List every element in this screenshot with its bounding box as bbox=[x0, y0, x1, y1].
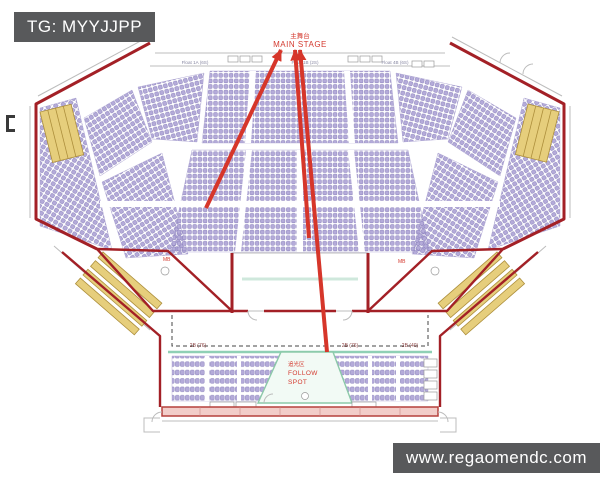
follow-spot-label-2: SPOT bbox=[288, 379, 307, 386]
corridor-line bbox=[452, 37, 562, 96]
ramp-bank-left bbox=[75, 252, 161, 335]
watermark-text: www.regaomendc.com bbox=[406, 448, 587, 468]
corridor-line bbox=[54, 246, 546, 330]
lower-level: 2B (76) 2B (76) 2B (40) 追光区 FOLLOW SPOT bbox=[144, 315, 456, 432]
stage: 主舞台 MAIN STAGE Float 1A (6S) Float 1B (2… bbox=[182, 31, 434, 67]
column bbox=[161, 267, 169, 275]
end-structure bbox=[144, 418, 456, 432]
follow-spot-label-cn: 追光区 bbox=[288, 360, 305, 368]
ramp-label-right: MB bbox=[398, 259, 406, 265]
watermark-badge: www.regaomendc.com bbox=[393, 443, 600, 473]
tag-badge-text: TG: MYYJJPP bbox=[27, 17, 142, 37]
column bbox=[431, 267, 439, 275]
ramp-label-left: MB bbox=[163, 257, 171, 263]
door-arc bbox=[248, 311, 352, 320]
row-label-right: 2B (40) bbox=[402, 343, 419, 349]
tag-badge: TG: MYYJJPP bbox=[14, 12, 155, 42]
pit-floor bbox=[232, 253, 368, 311]
float-label-left: Float 1A (6S) bbox=[182, 60, 209, 65]
dashed-boundary bbox=[172, 315, 428, 346]
screenshot-canvas: MB MB 主舞台 MAIN STAGE Float 1A (6S) Float… bbox=[0, 0, 600, 480]
venue-seating-map: MB MB 主舞台 MAIN STAGE Float 1A (6S) Float… bbox=[0, 0, 600, 480]
corridor-line bbox=[38, 37, 148, 96]
rear-wall bbox=[162, 407, 438, 416]
row-label-mid: 2B (76) bbox=[342, 343, 359, 349]
spotlight-position bbox=[302, 393, 309, 400]
pit-jambs bbox=[232, 253, 368, 313]
stage-label-en: MAIN STAGE bbox=[273, 40, 327, 49]
entrance-marker bbox=[6, 115, 15, 132]
row-label-left: 2B (76) bbox=[190, 343, 207, 349]
float-label-right: Float 4B (6S) bbox=[381, 60, 409, 65]
follow-spot-label-1: FOLLOW bbox=[288, 370, 318, 377]
ramp-bank-right bbox=[438, 252, 524, 335]
stage-label-cn: 主舞台 bbox=[290, 31, 310, 40]
